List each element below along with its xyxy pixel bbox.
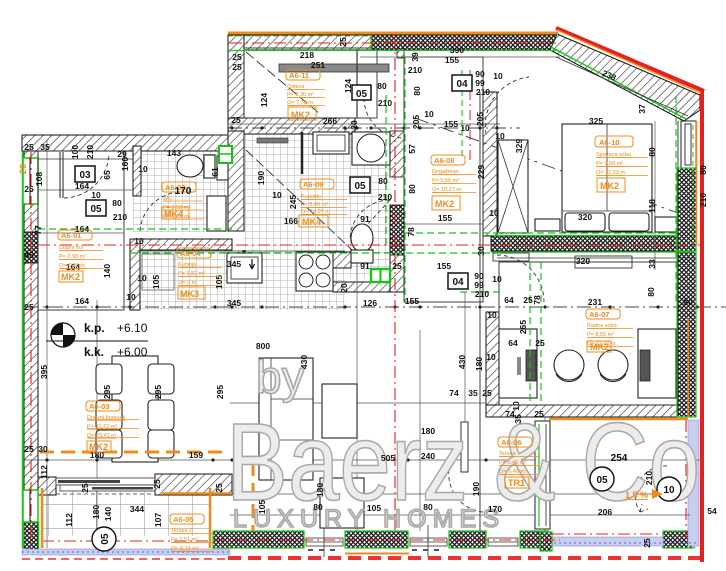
svg-text:170: 170 [488, 504, 502, 514]
svg-text:430: 430 [457, 355, 467, 369]
svg-text:A6-04: A6-04 [180, 249, 201, 258]
svg-text:MK2: MK2 [600, 181, 619, 191]
svg-text:210: 210 [698, 193, 708, 207]
svg-text:57: 57 [407, 144, 417, 154]
svg-text:33: 33 [647, 259, 657, 269]
svg-text:A6-09: A6-09 [303, 180, 323, 189]
svg-text:78: 78 [406, 227, 416, 237]
svg-text:100: 100 [70, 145, 80, 159]
svg-text:80: 80 [377, 81, 387, 91]
svg-text:k.p.: k.p. [84, 321, 105, 335]
svg-text:10: 10 [91, 190, 101, 200]
svg-text:210: 210 [378, 98, 392, 108]
svg-text:180: 180 [421, 426, 435, 436]
svg-text:159: 159 [189, 450, 203, 460]
svg-text:MK4: MK4 [164, 209, 183, 219]
svg-text:65: 65 [102, 170, 112, 180]
svg-text:78: 78 [532, 295, 542, 305]
svg-text:190: 190 [256, 171, 266, 185]
svg-text:10: 10 [272, 190, 282, 200]
svg-text:254: 254 [611, 453, 628, 464]
svg-text:155: 155 [444, 119, 458, 129]
svg-text:108: 108 [34, 172, 44, 186]
svg-text:25: 25 [642, 538, 652, 548]
svg-text:A6-06: A6-06 [501, 438, 521, 447]
svg-text:10: 10 [663, 485, 675, 496]
svg-text:MK2: MK2 [61, 272, 80, 282]
svg-text:25: 25 [24, 142, 34, 152]
svg-text:10: 10 [495, 131, 505, 141]
svg-text:25: 25 [535, 338, 545, 348]
svg-text:25: 25 [152, 479, 162, 489]
svg-text:MK3: MK3 [180, 289, 199, 299]
svg-text:91: 91 [360, 214, 370, 224]
svg-text:05: 05 [100, 533, 111, 545]
svg-text:10: 10 [424, 109, 434, 119]
svg-text:266: 266 [323, 116, 337, 126]
svg-text:345: 345 [227, 298, 241, 308]
svg-text:64: 64 [504, 295, 514, 305]
svg-text:MK2: MK2 [291, 110, 310, 120]
svg-text:320: 320 [576, 256, 590, 266]
svg-text:190: 190 [471, 482, 481, 496]
svg-text:344: 344 [130, 504, 144, 514]
svg-text:210: 210 [644, 471, 654, 485]
svg-text:206: 206 [598, 507, 612, 517]
svg-text:210: 210 [85, 145, 95, 159]
svg-text:64: 64 [508, 338, 518, 348]
svg-text:A6-08: A6-08 [434, 156, 454, 165]
svg-text:10: 10 [134, 236, 144, 246]
svg-text:25: 25 [24, 302, 34, 312]
svg-text:MK2: MK2 [590, 342, 609, 352]
svg-text:25: 25 [232, 62, 242, 72]
svg-text:54: 54 [707, 506, 717, 516]
svg-text:112: 112 [64, 513, 74, 527]
svg-text:345: 345 [227, 259, 241, 269]
svg-text:395: 395 [39, 365, 49, 379]
svg-text:20: 20 [18, 164, 28, 174]
svg-text:Dnevni boravak: Dnevni boravak [87, 415, 125, 421]
svg-text:430: 430 [299, 355, 309, 369]
svg-text:37: 37 [637, 104, 647, 114]
svg-text:25: 25 [534, 409, 544, 419]
svg-text:80: 80 [112, 198, 122, 208]
svg-text:245: 245 [288, 195, 298, 209]
svg-text:105: 105 [367, 503, 381, 513]
svg-text:91: 91 [360, 261, 370, 271]
svg-text:20: 20 [339, 283, 349, 293]
svg-text:164: 164 [75, 296, 89, 306]
svg-text:TR1: TR1 [508, 478, 525, 488]
svg-text:35: 35 [513, 414, 523, 424]
svg-text:205: 205 [475, 112, 485, 126]
svg-text:61: 61 [210, 167, 220, 177]
svg-text:25: 25 [482, 388, 492, 398]
svg-text:10: 10 [126, 292, 136, 302]
svg-text:MK2: MK2 [435, 199, 454, 209]
svg-text:05: 05 [90, 204, 102, 215]
svg-text:25: 25 [24, 444, 34, 454]
svg-text:143: 143 [167, 148, 181, 158]
svg-text:166: 166 [284, 216, 298, 226]
svg-text:205: 205 [411, 115, 421, 129]
svg-text:45: 45 [24, 250, 34, 260]
svg-text:A6-05: A6-05 [173, 515, 193, 524]
svg-text:325: 325 [589, 116, 603, 126]
svg-text:+6.00: +6.00 [117, 345, 148, 359]
svg-text:80: 80 [698, 165, 708, 175]
svg-text:295: 295 [102, 385, 112, 399]
svg-text:A6-07: A6-07 [589, 310, 609, 319]
svg-text:231: 231 [588, 297, 602, 307]
svg-text:O= 23,42 m: O= 23,42 m [87, 433, 116, 439]
svg-text:295: 295 [153, 385, 163, 399]
svg-text:505: 505 [381, 453, 395, 463]
svg-text:74: 74 [449, 388, 459, 398]
svg-text:77: 77 [33, 225, 43, 235]
svg-text:05: 05 [356, 89, 368, 100]
svg-text:10: 10 [137, 273, 147, 283]
svg-text:80: 80 [423, 502, 433, 512]
svg-text:210: 210 [113, 212, 127, 222]
svg-text:30: 30 [683, 297, 693, 307]
svg-text:A6-11: A6-11 [289, 71, 309, 80]
svg-text:10: 10 [493, 71, 503, 81]
svg-text:25: 25 [80, 483, 90, 493]
svg-text:35: 35 [468, 388, 478, 398]
svg-text:20: 20 [349, 120, 359, 130]
svg-text:107: 107 [153, 513, 163, 527]
svg-text:by: by [256, 351, 305, 403]
svg-text:390: 390 [450, 45, 464, 55]
svg-text:39: 39 [410, 52, 420, 62]
svg-text:210: 210 [476, 87, 490, 97]
svg-text:210: 210 [378, 192, 392, 202]
svg-text:25: 25 [232, 52, 242, 62]
svg-text:118: 118 [647, 199, 657, 213]
svg-text:MK2: MK2 [89, 442, 108, 452]
svg-text:180: 180 [315, 483, 325, 497]
svg-text:80: 80 [407, 184, 417, 194]
svg-text:05: 05 [596, 475, 608, 486]
svg-text:P= 31,72 m²: P= 31,72 m² [87, 424, 117, 430]
svg-text:05: 05 [354, 181, 366, 192]
svg-text:155: 155 [438, 213, 452, 223]
svg-text:03: 03 [79, 170, 91, 181]
svg-text:10: 10 [511, 401, 521, 411]
svg-text:155: 155 [405, 296, 419, 306]
svg-text:25: 25 [214, 483, 224, 493]
svg-text:229: 229 [476, 165, 486, 179]
svg-text:265: 265 [518, 320, 528, 334]
svg-text:80: 80 [646, 287, 656, 297]
svg-text:295: 295 [215, 385, 225, 399]
svg-text:251: 251 [311, 60, 325, 70]
svg-text:A6-03: A6-03 [89, 402, 109, 411]
svg-text:A6-01: A6-01 [61, 231, 81, 240]
svg-text:10: 10 [492, 274, 502, 284]
svg-text:80: 80 [412, 86, 422, 96]
svg-text:10: 10 [138, 164, 148, 174]
svg-text:180: 180 [474, 357, 484, 371]
svg-text:04: 04 [452, 277, 464, 288]
svg-text:155: 155 [445, 55, 459, 65]
svg-text:170: 170 [175, 186, 192, 197]
svg-text:140: 140 [102, 264, 112, 278]
svg-text:210: 210 [408, 65, 422, 75]
svg-text:35: 35 [40, 142, 50, 152]
svg-text:k.k.: k.k. [84, 345, 104, 359]
svg-text:30: 30 [38, 444, 48, 454]
svg-text:105: 105 [257, 500, 267, 514]
svg-text:25: 25 [338, 37, 348, 47]
svg-text:210: 210 [475, 289, 489, 299]
svg-text:218: 218 [300, 50, 314, 60]
svg-text:10: 10 [487, 310, 497, 320]
svg-text:320: 320 [578, 212, 592, 222]
svg-text:329: 329 [514, 139, 524, 153]
svg-text:MK4: MK4 [302, 217, 321, 227]
svg-text:155: 155 [437, 261, 451, 271]
svg-text:04: 04 [456, 79, 468, 90]
svg-text:140: 140 [103, 507, 113, 521]
svg-text:240: 240 [421, 451, 435, 461]
svg-text:180: 180 [91, 505, 101, 519]
svg-text:10: 10 [489, 208, 499, 218]
svg-text:30: 30 [476, 246, 486, 256]
svg-text:+6.10: +6.10 [117, 321, 148, 335]
svg-text:80: 80 [313, 502, 323, 512]
svg-text:25: 25 [392, 261, 402, 271]
svg-text:160: 160 [120, 157, 130, 171]
svg-text:1.5 %: 1.5 % [625, 490, 648, 500]
svg-text:25: 25 [231, 115, 241, 125]
svg-text:126: 126 [363, 298, 377, 308]
svg-text:105: 105 [151, 275, 161, 289]
svg-text:80: 80 [647, 147, 657, 157]
svg-text:A6-10: A6-10 [599, 138, 619, 147]
svg-text:25: 25 [24, 184, 34, 194]
svg-text:80: 80 [378, 176, 388, 186]
svg-text:10: 10 [486, 352, 496, 362]
svg-text:124: 124 [259, 93, 269, 107]
svg-text:800: 800 [256, 341, 270, 351]
svg-text:112: 112 [39, 465, 49, 479]
